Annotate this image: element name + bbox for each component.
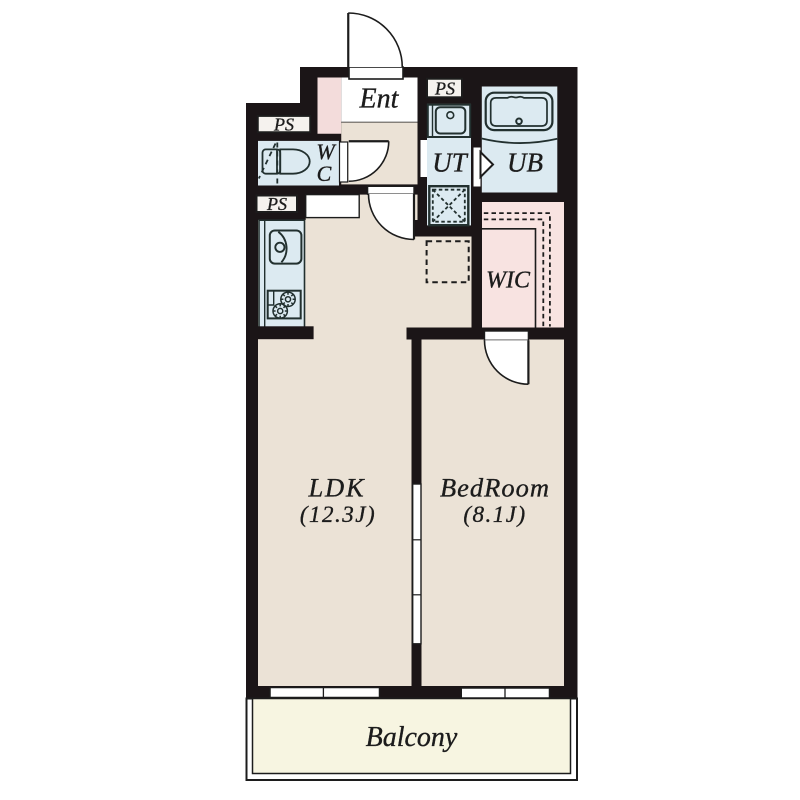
svg-text:WIC: WIC (486, 268, 531, 294)
svg-text:(8.1J): (8.1J) (463, 502, 526, 527)
svg-text:PS: PS (273, 114, 294, 134)
svg-text:C: C (317, 161, 332, 186)
svg-text:UB: UB (507, 148, 543, 178)
svg-text:LDK: LDK (308, 473, 366, 503)
svg-text:BedRoom: BedRoom (440, 473, 550, 503)
svg-text:PS: PS (434, 78, 455, 98)
svg-text:Ent: Ent (359, 84, 400, 115)
svg-text:(12.3J): (12.3J) (300, 502, 376, 527)
svg-text:PS: PS (266, 194, 287, 214)
svg-text:Balcony: Balcony (366, 722, 458, 753)
svg-text:UT: UT (432, 148, 468, 178)
